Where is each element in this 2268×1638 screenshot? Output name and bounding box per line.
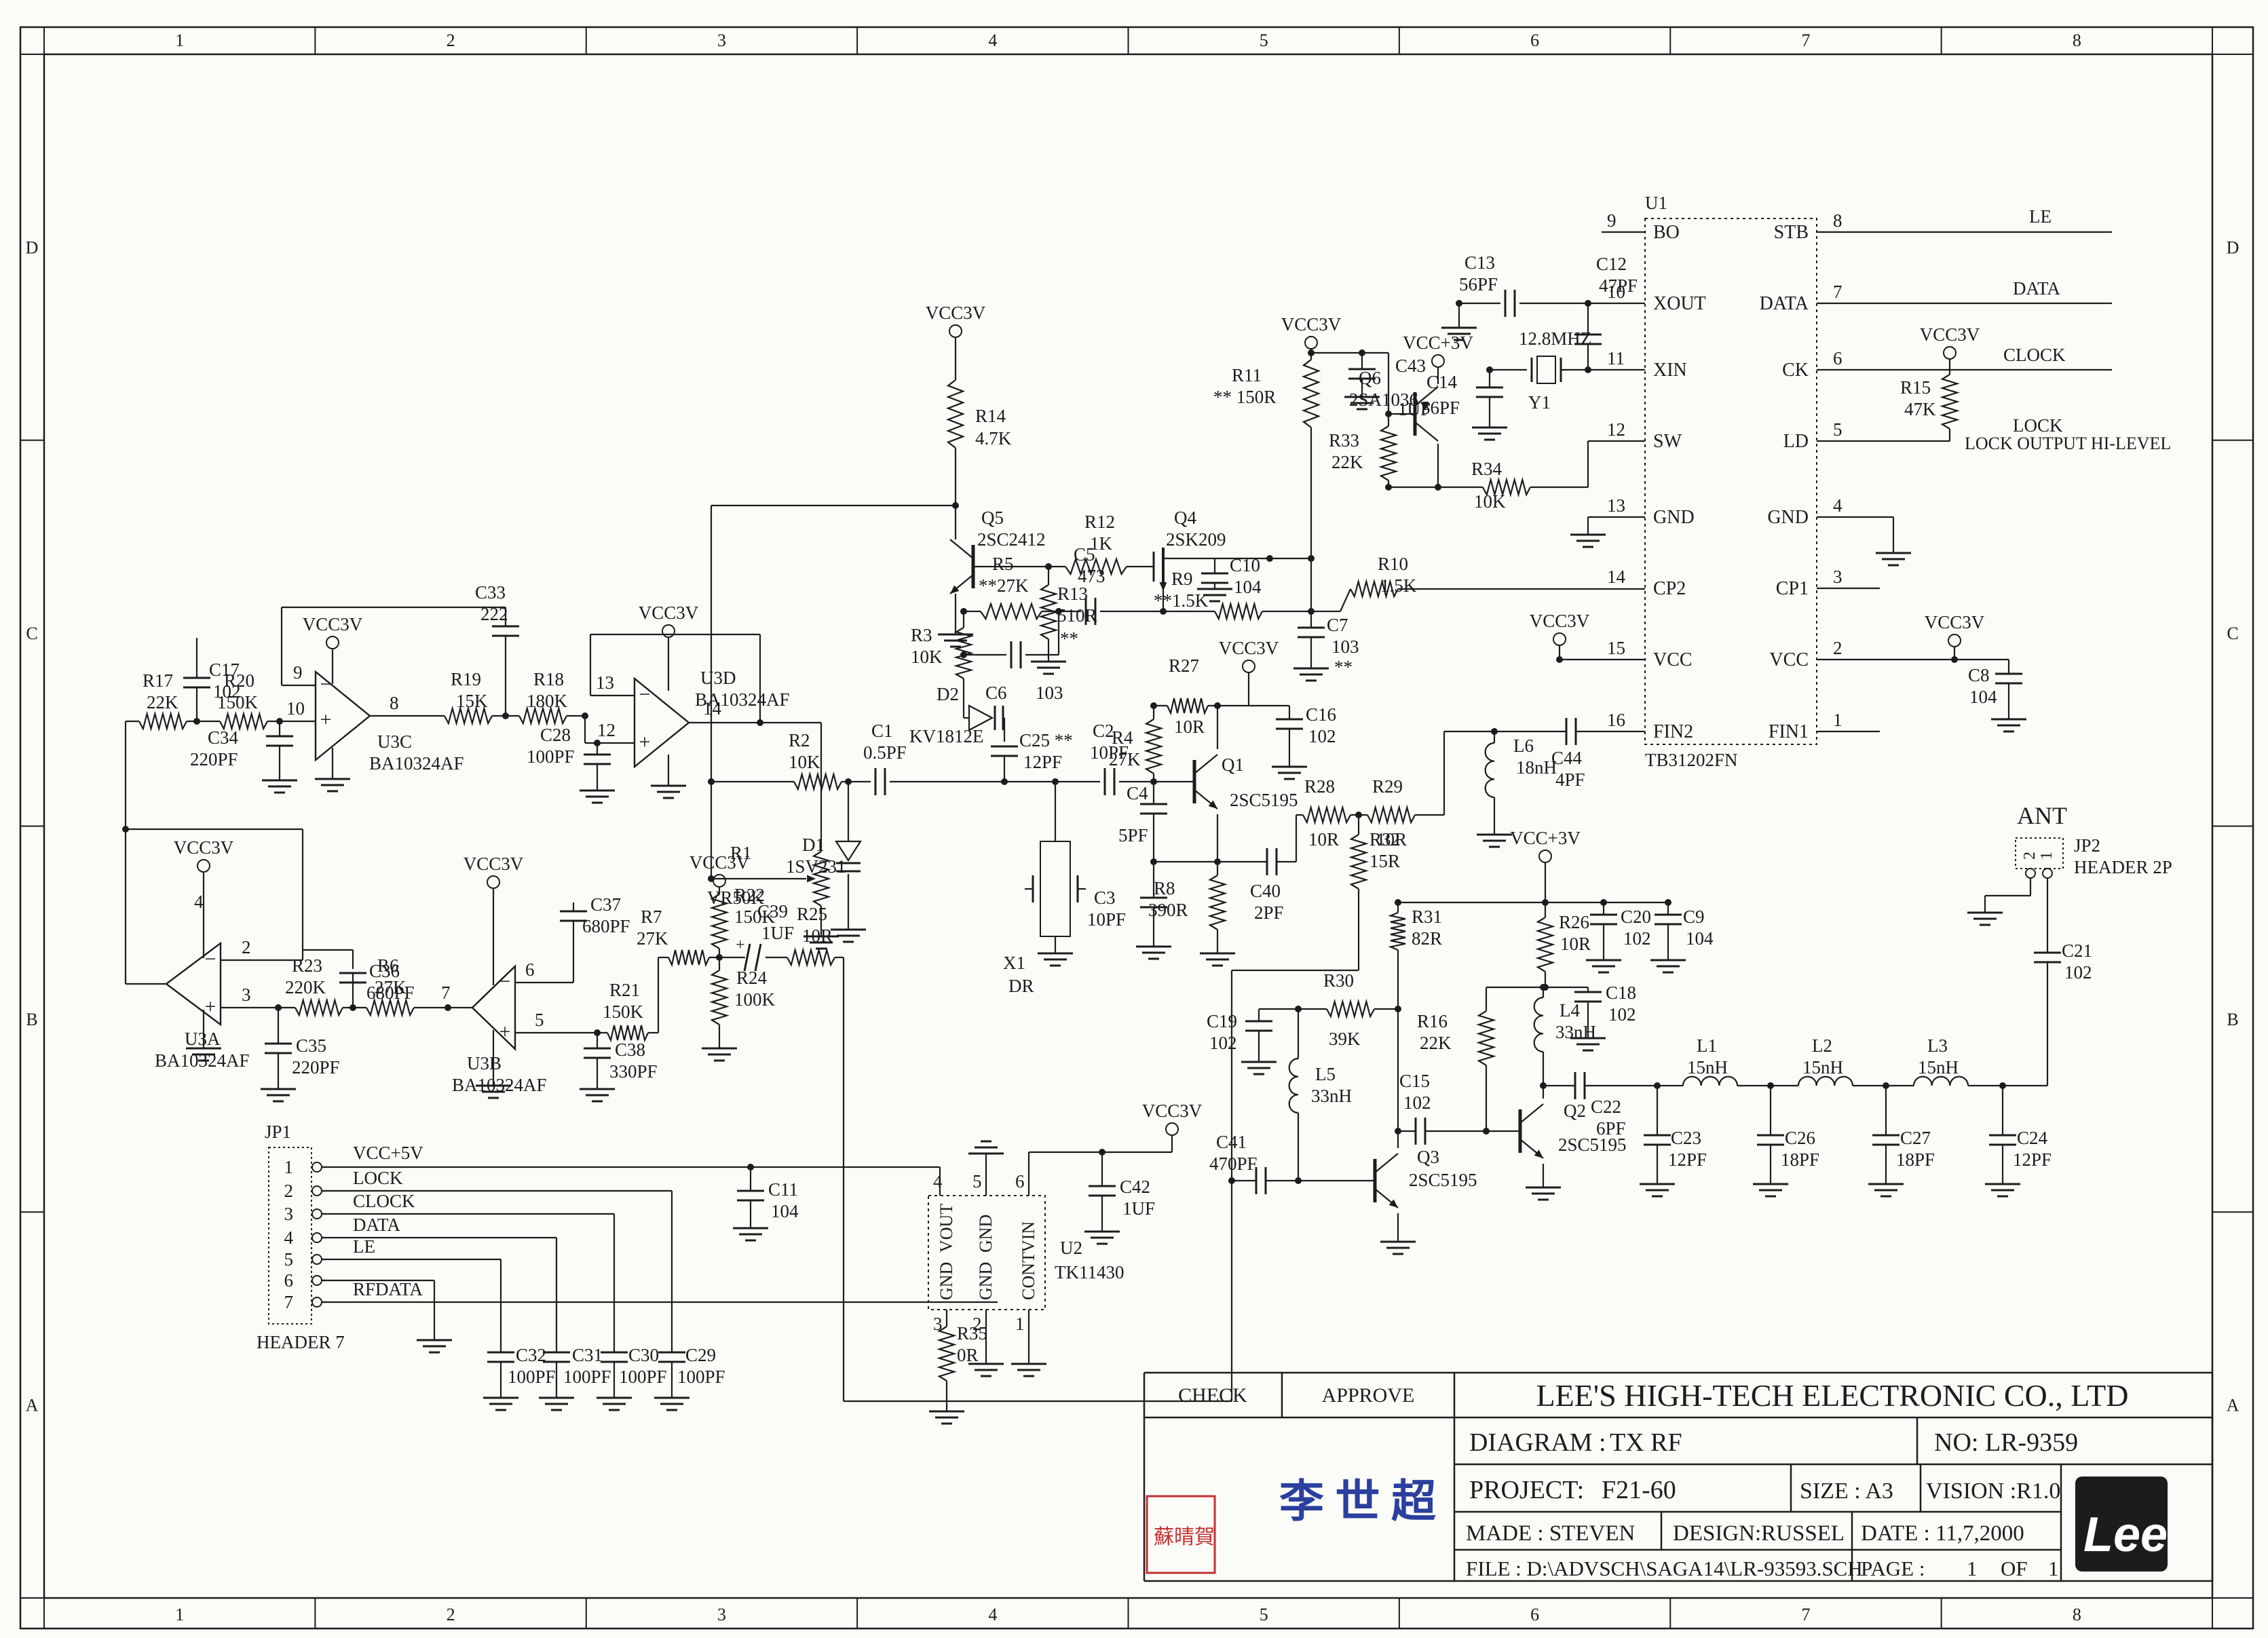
component-label: 102 <box>2064 962 2092 983</box>
component-label: 0.5PF <box>863 742 907 763</box>
component-label: 100PF <box>527 746 575 767</box>
component-label: L2 <box>1812 1035 1832 1056</box>
junction-dot <box>1665 899 1671 906</box>
pin-name: SW <box>1653 431 1682 452</box>
zone-col: 2 <box>447 1605 455 1624</box>
junction-dot <box>594 740 601 746</box>
pin-name: GND <box>937 1262 956 1300</box>
junction-dot <box>594 1029 601 1036</box>
pin-number: 6 <box>1833 348 1842 368</box>
component-label: U3D <box>700 668 736 688</box>
pin-number: 4 <box>933 1171 943 1192</box>
component-label: R12 <box>1084 512 1115 532</box>
component-label: 33nH <box>1555 1022 1596 1042</box>
component-label: − <box>205 948 216 970</box>
component-label: 8 <box>390 693 399 713</box>
junction-dot <box>1883 1082 1889 1089</box>
component-label: 2SC5195 <box>1230 790 1298 810</box>
component-label: 220K <box>285 977 326 997</box>
resistor <box>1327 1002 1374 1016</box>
resistor <box>295 1000 343 1015</box>
component-label: − <box>320 673 332 696</box>
component-label: 12 <box>597 720 616 740</box>
component-label: Y1 <box>1528 392 1551 413</box>
tb-page-of: OF <box>2001 1557 2028 1580</box>
component-label: C27 <box>1900 1128 1931 1148</box>
component-label: 102 <box>1608 1004 1636 1025</box>
zone-col: 6 <box>1530 1605 1539 1624</box>
component-label: 9 <box>293 662 303 683</box>
component-label: 104 <box>1686 928 1714 949</box>
component-label: 18PF <box>1896 1149 1935 1170</box>
inductor <box>1914 1077 1968 1086</box>
component-label: Q5 <box>981 508 1004 528</box>
junction-dot <box>502 712 509 719</box>
component-label: 220PF <box>292 1057 340 1078</box>
component-label: 0R <box>957 1345 979 1365</box>
power-label: VCC3V <box>926 303 986 323</box>
component-label: 12.8MHZ <box>1519 328 1591 349</box>
component-label: 15R <box>1369 851 1400 871</box>
component-label: 680PF <box>582 916 630 936</box>
component-label: R31 <box>1412 907 1442 927</box>
component-label: R28 <box>1304 776 1335 797</box>
zone-row: A <box>2227 1396 2239 1415</box>
component-label: 18nH <box>1516 757 1557 778</box>
pin-circle <box>312 1186 322 1196</box>
pin-number: 4 <box>284 1227 294 1248</box>
zone-col: 3 <box>717 1605 726 1624</box>
component-label: 100K <box>734 989 776 1010</box>
pin-number: 2 <box>1833 638 1842 658</box>
component-label: 10 <box>286 698 305 719</box>
component-label: 1.5K <box>1380 575 1417 596</box>
pin-number: 15 <box>1607 638 1625 658</box>
component-label: Q2 <box>1564 1101 1586 1121</box>
connector-ref: JP2 <box>2074 835 2100 856</box>
component-label: 100PF <box>619 1367 667 1387</box>
junction-dot <box>1542 899 1549 906</box>
pin-name: VIN <box>1019 1221 1038 1253</box>
resistor <box>1381 426 1396 480</box>
component-label: + <box>205 995 216 1018</box>
zone-col: 2 <box>447 31 455 50</box>
component-label: 22K <box>1420 1033 1452 1053</box>
pin-name: XIN <box>1653 360 1687 381</box>
tb-file: FILE : D:\ADVSCH\SAGA14\LR-93593.SCH <box>1466 1557 1863 1580</box>
resistor <box>981 604 1042 619</box>
resistor <box>668 950 709 965</box>
component-label: + <box>320 708 332 731</box>
junction-dot <box>747 1164 754 1170</box>
wire <box>1375 1154 1398 1173</box>
junction-dot <box>1052 778 1059 785</box>
junction-dot <box>1486 366 1493 373</box>
component-label: 39K <box>1329 1029 1361 1049</box>
component-label: 12PF <box>1668 1149 1707 1170</box>
junction-dot <box>349 1004 356 1011</box>
pin-name: VCC <box>1769 649 1809 670</box>
tb-size: SIZE : A3 <box>1800 1479 1893 1504</box>
component-label: C1 <box>871 721 893 741</box>
component-label: R3 <box>911 625 932 645</box>
inductor <box>1534 997 1543 1052</box>
pin-number: 8 <box>1833 210 1842 231</box>
zone-col: 7 <box>1801 1605 1810 1624</box>
component-label: 180K <box>527 691 568 711</box>
component-label: 5 <box>535 1010 544 1030</box>
crystal-body <box>1537 356 1555 383</box>
component-label: C2 <box>1093 721 1114 741</box>
junction-dot <box>1150 702 1157 709</box>
component-label: 10R <box>1174 717 1205 737</box>
pin-number: 2 <box>2021 852 2039 860</box>
component-label: 2PF <box>1254 902 1284 923</box>
component-label: 473 <box>1078 566 1105 586</box>
junction-dot <box>276 718 283 725</box>
component-label: 7 <box>441 983 451 1003</box>
component-label: D1 <box>802 835 825 855</box>
pin-circle <box>312 1209 322 1219</box>
component-label: 2SC2412 <box>977 529 1046 550</box>
component-label: BA10324AF <box>369 753 464 774</box>
component-label: R4 <box>1112 727 1133 748</box>
component-label: C10 <box>1230 555 1260 575</box>
junction-dot <box>1295 1177 1302 1184</box>
component-label: R23 <box>292 955 322 976</box>
component-label: R5 <box>992 554 1014 574</box>
component-label: 10K <box>911 647 943 667</box>
pin-number: 12 <box>1607 419 1625 440</box>
component-label: + <box>639 731 651 753</box>
component-label: 56PF <box>1421 398 1460 418</box>
component-label: LE <box>353 1236 375 1257</box>
component-label: 3 <box>242 985 251 1005</box>
junction-dot <box>845 778 852 785</box>
component-label: 1SV231 <box>786 856 846 877</box>
junction-dot <box>1150 858 1157 865</box>
component-label: KV1812E <box>909 726 984 746</box>
component-label: C44 <box>1551 748 1583 768</box>
component-label: 56PF <box>1459 274 1498 294</box>
component-label: C19 <box>1207 1011 1237 1031</box>
junction-dot <box>1266 555 1273 562</box>
component-label: C11 <box>768 1179 798 1200</box>
component-label: C20 <box>1621 907 1651 927</box>
resistor <box>712 970 727 1025</box>
component-label: Q1 <box>1222 755 1244 775</box>
cap-electrolytic <box>744 944 750 971</box>
component-label: C34 <box>208 727 239 748</box>
component-label: 103 <box>1331 636 1359 657</box>
component-label: R27 <box>1169 655 1199 676</box>
component-label: 47K <box>1904 399 1936 419</box>
power-label: VCC+3V <box>1403 332 1473 353</box>
tb-design: DESIGN:RUSSEL <box>1673 1521 1845 1546</box>
component-label: U3A <box>185 1029 221 1049</box>
component-label: 2SA1036 <box>1349 389 1418 410</box>
junction-dot <box>1308 608 1315 615</box>
component-label: R10 <box>1378 554 1408 574</box>
tb-page-value: 1 <box>2048 1557 2059 1580</box>
pin-name: GND <box>976 1262 996 1300</box>
ic-ref: U1 <box>1645 193 1667 213</box>
component-label: 13 <box>596 672 614 693</box>
component-label: R29 <box>1372 776 1403 797</box>
junction-dot <box>757 719 763 726</box>
junction-dot <box>1385 484 1392 491</box>
connector-type: HEADER 2P <box>2074 857 2172 877</box>
power-label: VCC+3V <box>1510 828 1581 848</box>
junction-dot <box>1395 1006 1401 1012</box>
resistor <box>1391 913 1405 950</box>
junction-dot <box>1359 349 1365 356</box>
component-label: CLOCK <box>2003 345 2066 365</box>
component-label: 12PF <box>2013 1149 2052 1170</box>
component-label: 222 <box>480 604 508 624</box>
power-label: VCC3V <box>1281 314 1342 335</box>
component-label: BA10324AF <box>155 1050 250 1071</box>
power-node <box>1553 633 1566 645</box>
zone-col: 8 <box>2073 1605 2081 1624</box>
pin-number: 3 <box>933 1314 943 1334</box>
junction-dot <box>1045 563 1052 570</box>
pin-name: GND <box>1767 507 1809 528</box>
resistor <box>220 714 267 729</box>
junction-dot <box>1214 858 1221 865</box>
component-label: 10R <box>1560 934 1591 954</box>
inductor <box>1683 1077 1737 1086</box>
pin-circle <box>312 1255 322 1264</box>
component-label: 102 <box>1623 928 1651 949</box>
power-label: VCC3V <box>1920 324 1980 345</box>
schematic-canvas: VCC3VVCC3VVCC+3VVCC3VVCC3VVCC3VVCC3VVCC3… <box>0 0 2268 1638</box>
component-label: **27K <box>979 575 1029 596</box>
junction-dot <box>716 954 723 961</box>
component-label: U3B <box>467 1053 502 1073</box>
component-label: R13 <box>1057 584 1088 604</box>
component-label: 27K <box>637 928 668 949</box>
junction-dot <box>1483 1128 1490 1135</box>
component-label: C38 <box>615 1040 645 1060</box>
power-label: VCC3V <box>1142 1101 1203 1121</box>
component-label: R1 <box>730 843 752 863</box>
component-label: 4PF <box>1555 769 1585 790</box>
component-label: L1 <box>1697 1035 1717 1056</box>
zone-col: 4 <box>988 31 997 50</box>
wire <box>1520 1104 1543 1123</box>
wire <box>1194 755 1217 774</box>
component-label: 102 <box>1403 1092 1431 1113</box>
power-node <box>1948 634 1961 647</box>
tb-project-value: F21-60 <box>1602 1476 1676 1504</box>
pin-circle <box>312 1162 322 1172</box>
resistor <box>1479 1011 1494 1065</box>
junction-dot <box>582 712 588 719</box>
component-label: 220PF <box>190 749 238 769</box>
cap-electrolytic <box>755 944 761 971</box>
junction-dot <box>445 1004 451 1011</box>
component-label: C24 <box>2017 1128 2048 1148</box>
component-label: 680PF <box>366 983 415 1003</box>
component-label: 12PF <box>1023 752 1062 772</box>
component-label: 390R <box>1148 900 1188 920</box>
pin-name: CP1 <box>1776 578 1809 599</box>
component-label: R8 <box>1154 878 1175 898</box>
component-label: R14 <box>975 406 1006 426</box>
resistor <box>1167 698 1208 713</box>
component-label: C9 <box>1683 907 1705 927</box>
junction-dot <box>1435 484 1441 491</box>
component-label: C36 <box>369 961 400 981</box>
component-label: R15 <box>1900 377 1931 398</box>
resistor <box>1942 375 1957 429</box>
resistor <box>1538 917 1553 972</box>
power-node <box>662 625 675 637</box>
power-label: VCC3V <box>639 603 699 623</box>
zone-col: 4 <box>988 1605 997 1624</box>
component-label: 33nH <box>1311 1086 1352 1106</box>
component-label: LOCK OUTPUT HI-LEVEL <box>1965 434 2171 453</box>
component-label: 100PF <box>563 1367 611 1387</box>
component-label: C14 <box>1426 372 1458 392</box>
component-label: C5 <box>1074 544 1095 565</box>
component-label: 100PF <box>677 1367 725 1387</box>
resistor <box>787 950 835 965</box>
pin-name: GND <box>976 1215 996 1253</box>
pin-name: VOUT <box>937 1204 956 1253</box>
pin-name: GND <box>1653 507 1695 528</box>
junction-dot <box>952 502 959 509</box>
power-node <box>487 876 499 888</box>
resistor <box>939 1327 954 1381</box>
wire <box>1415 422 1438 441</box>
component-label: ANT <box>2017 802 2067 829</box>
junction-dot <box>1395 1128 1401 1135</box>
component-label: X1 <box>1003 953 1025 973</box>
junction-dot <box>275 1004 282 1011</box>
component-label: 15nH <box>1918 1057 1959 1078</box>
connector-type: HEADER 7 <box>257 1332 345 1352</box>
zone-row: A <box>26 1396 39 1415</box>
junction-dot <box>1001 778 1008 785</box>
pin-number: 2 <box>972 1314 982 1334</box>
component-label: C8 <box>1968 665 1990 685</box>
ic-ref: U2 <box>1060 1238 1082 1258</box>
component-label: U3C <box>377 731 412 752</box>
resistor <box>948 380 963 448</box>
component-label: ** <box>1060 628 1078 649</box>
component-label: 102 <box>213 681 241 702</box>
power-label: VCC3V <box>1219 638 1279 658</box>
component-label: LE <box>2029 206 2052 227</box>
component-label: C12 <box>1596 254 1627 274</box>
component-label: R16 <box>1417 1011 1448 1031</box>
component-label: C35 <box>296 1035 326 1056</box>
zone-col: 8 <box>2073 31 2081 50</box>
junction-dot <box>1228 1177 1235 1184</box>
connector-ref: JP1 <box>265 1122 291 1142</box>
pin-number: 14 <box>1607 567 1626 587</box>
component-label: C32 <box>516 1345 546 1365</box>
component-label: C31 <box>572 1345 603 1365</box>
zone-row: C <box>2227 624 2238 643</box>
component-label: R21 <box>609 980 640 1000</box>
component-label: C18 <box>1606 983 1636 1003</box>
junction-dot <box>1456 300 1462 307</box>
junction-dot <box>1308 349 1315 356</box>
component-label: C37 <box>590 894 621 915</box>
zone-row: C <box>26 624 37 643</box>
tb-vision: VISION :R1.0 <box>1926 1479 2060 1504</box>
zone-col: 7 <box>1801 31 1810 50</box>
pin-number: 1 <box>284 1157 294 1177</box>
pin-number: 16 <box>1607 710 1625 730</box>
component-label: 100PF <box>508 1367 556 1387</box>
component-label: 22K <box>1331 452 1363 472</box>
component-label: 10K <box>789 752 820 772</box>
component-label: 104 <box>1234 577 1262 597</box>
component-label: 18PF <box>1781 1149 1819 1170</box>
component-label: 27K <box>1109 749 1141 769</box>
zone-row: D <box>2227 237 2239 257</box>
zone-row: D <box>26 237 39 257</box>
component-label: R32 <box>1369 829 1400 850</box>
component-label: C43 <box>1395 356 1426 376</box>
component-label: C29 <box>685 1345 716 1365</box>
component-label: − <box>499 970 511 993</box>
tb-stamp: 蘇晴賀 <box>1154 1526 1215 1548</box>
component-label: L4 <box>1560 1000 1580 1021</box>
junction-dot <box>1099 1149 1105 1156</box>
resistor <box>1304 360 1319 427</box>
component-label: − <box>639 683 651 706</box>
pin-name: FIN2 <box>1653 721 1693 742</box>
component-label: 1UF <box>1122 1198 1155 1219</box>
power-label: VCC3V <box>464 854 524 874</box>
resistor <box>1303 807 1350 822</box>
power-label: VCC3V <box>303 614 363 634</box>
junction-dot <box>960 608 967 615</box>
pin-number: 4 <box>1833 495 1842 516</box>
tb-project-label: PROJECT: <box>1469 1476 1584 1504</box>
component-label: C33 <box>475 582 506 603</box>
power-label: VCC3V <box>1530 611 1590 631</box>
component-label: LOCK <box>2013 415 2063 436</box>
resistor <box>607 1025 648 1040</box>
tb-no: NO: LR-9359 <box>1934 1428 2078 1457</box>
junction-dot <box>1542 984 1549 991</box>
component-label: 2SK209 <box>1166 529 1226 550</box>
pin-name: DATA <box>1760 293 1809 314</box>
component-label: 10R <box>1308 829 1339 850</box>
junction-dot <box>1951 656 1958 663</box>
pin-number: 7 <box>284 1292 294 1312</box>
pin-circle <box>312 1276 322 1285</box>
tb-signature: 李 世 超 <box>1279 1477 1437 1527</box>
component-label: C16 <box>1306 704 1336 725</box>
component-label: R7 <box>641 907 662 927</box>
component-label: LOCK <box>353 1168 403 1188</box>
tb-diagram-value: TX RF <box>1610 1428 1682 1457</box>
junction-dot <box>193 718 200 725</box>
tb-date: DATE : 11,7,2000 <box>1861 1521 2024 1546</box>
component-label: C23 <box>1671 1128 1701 1148</box>
power-node <box>1166 1123 1178 1135</box>
pin-number: 11 <box>1607 348 1625 368</box>
component-label: DATA <box>353 1215 400 1235</box>
pin-circle <box>2043 869 2052 878</box>
